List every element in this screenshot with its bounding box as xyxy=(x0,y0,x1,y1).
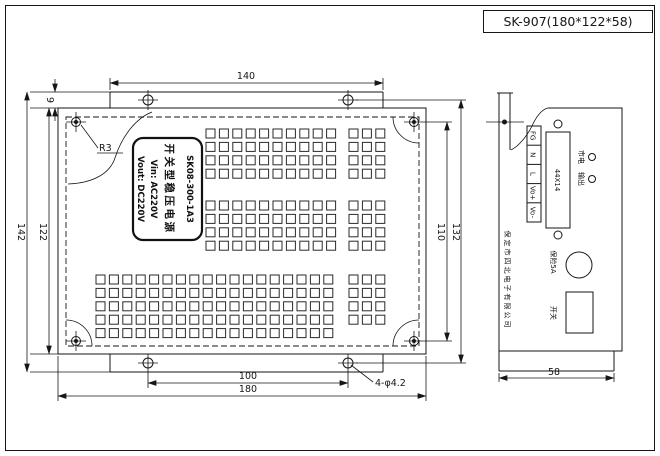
power-switch: 开关 xyxy=(549,292,593,333)
vent-hole xyxy=(230,329,239,338)
vent-hole xyxy=(300,214,309,223)
vent-hole xyxy=(376,156,385,165)
vent-hole xyxy=(96,329,105,338)
vent-hole xyxy=(300,156,309,165)
vent-hole xyxy=(313,129,322,138)
vent-hole xyxy=(246,228,255,237)
vent-hole xyxy=(230,315,239,324)
vent-hole xyxy=(206,241,215,250)
vent-hole xyxy=(243,288,252,297)
vent-hole xyxy=(376,228,385,237)
vent-hole xyxy=(286,156,295,165)
vent-hole xyxy=(163,275,172,284)
vent-hole xyxy=(233,241,242,250)
vent-hole xyxy=(233,214,242,223)
vent-hole xyxy=(362,275,371,284)
vent-hole xyxy=(257,302,266,311)
vent-hole xyxy=(349,214,358,223)
vent-hole xyxy=(246,169,255,178)
vent-hole xyxy=(327,129,336,138)
output-led xyxy=(589,176,596,183)
engineering-drawing: SK-907(180*122*58) xyxy=(0,0,660,456)
vent-hole xyxy=(300,241,309,250)
vent-hole xyxy=(376,169,385,178)
vent-hole xyxy=(376,201,385,210)
vent-hole xyxy=(136,302,145,311)
cutout-screw-top xyxy=(554,120,562,128)
vent-hole xyxy=(362,169,371,178)
company-name: 保定市四北电子有限公司 xyxy=(503,231,512,330)
vent-hole xyxy=(286,129,295,138)
vent-hole xyxy=(310,275,319,284)
callout-r3-label: R3 xyxy=(99,143,112,154)
vent-hole xyxy=(217,315,226,324)
vent-hole xyxy=(136,288,145,297)
vent-hole xyxy=(313,156,322,165)
dim-9-label: 9 xyxy=(44,97,55,103)
vent-hole xyxy=(362,228,371,237)
dim-58-label: 58 xyxy=(548,367,560,378)
vent-hole xyxy=(324,315,333,324)
vent-hole xyxy=(190,288,199,297)
vent-hole xyxy=(260,142,269,151)
vent-hole xyxy=(270,288,279,297)
vent-hole xyxy=(96,315,105,324)
vent-hole xyxy=(260,241,269,250)
dim-140: 140 xyxy=(110,71,383,83)
vent-hole xyxy=(349,201,358,210)
vent-hole xyxy=(206,129,215,138)
vent-hole xyxy=(286,228,295,237)
vent-hole xyxy=(233,169,242,178)
cutout-screw-bottom xyxy=(554,231,562,239)
vent-hole xyxy=(150,329,159,338)
vent-hole xyxy=(313,142,322,151)
vent-hole xyxy=(349,315,358,324)
vent-hole xyxy=(123,315,132,324)
vent-hole xyxy=(190,302,199,311)
title-block: SK-907(180*122*58) xyxy=(484,11,653,33)
dim-110-label: 110 xyxy=(435,223,446,241)
corner-screw-top-right xyxy=(404,112,424,132)
vent-hole xyxy=(96,288,105,297)
vent-hole xyxy=(233,228,242,237)
vent-hole xyxy=(109,329,118,338)
vent-hole xyxy=(349,129,358,138)
vent-hole xyxy=(243,315,252,324)
vent-hole xyxy=(300,169,309,178)
vent-hole xyxy=(284,288,293,297)
vent-hole xyxy=(376,214,385,223)
vent-hole xyxy=(163,329,172,338)
vent-hole xyxy=(273,201,282,210)
vent-hole xyxy=(376,275,385,284)
vent-hole xyxy=(203,315,212,324)
vent-hole xyxy=(150,315,159,324)
vent-hole xyxy=(286,169,295,178)
vent-hole xyxy=(376,288,385,297)
vent-hole xyxy=(217,275,226,284)
vent-hole xyxy=(219,142,228,151)
side-body-outline xyxy=(499,108,622,351)
vent-hole xyxy=(109,315,118,324)
vent-hole xyxy=(349,302,358,311)
vent-hole xyxy=(257,329,266,338)
vent-hole xyxy=(176,302,185,311)
callout-r3: R3 xyxy=(81,125,123,154)
vent-hole xyxy=(190,275,199,284)
label-output: Vout: DC220V xyxy=(135,156,145,222)
vent-hole xyxy=(206,169,215,178)
side-flange-lip xyxy=(486,93,524,150)
fuse: 保险5A xyxy=(549,250,592,278)
cutout-size-label: 44X14 xyxy=(553,169,561,192)
vent-hole xyxy=(123,288,132,297)
vent-hole xyxy=(230,288,239,297)
vent-hole xyxy=(109,288,118,297)
terminal-vo-minus: Vo- xyxy=(529,207,537,219)
vent-hole xyxy=(260,214,269,223)
vent-hole xyxy=(203,275,212,284)
vent-hole xyxy=(206,214,215,223)
vent-hole xyxy=(286,214,295,223)
vent-hole xyxy=(176,288,185,297)
vent-hole xyxy=(310,288,319,297)
dim-100-label: 100 xyxy=(239,371,257,382)
switch-label: 开关 xyxy=(549,306,558,320)
vent-hole xyxy=(123,302,132,311)
vent-hole xyxy=(96,302,105,311)
vent-hole xyxy=(324,329,333,338)
vent-hole xyxy=(190,315,199,324)
label-product-name: 开关型稳压电源 xyxy=(163,144,176,235)
vent-hole xyxy=(327,241,336,250)
vent-hole xyxy=(362,129,371,138)
vent-hole xyxy=(313,169,322,178)
vent-hole xyxy=(362,156,371,165)
vent-hole xyxy=(327,142,336,151)
vent-hole xyxy=(349,142,358,151)
vent-hole xyxy=(150,288,159,297)
vent-hole xyxy=(300,129,309,138)
vent-hole xyxy=(376,241,385,250)
flange-screw-dot xyxy=(502,120,507,125)
dim-132-label: 132 xyxy=(450,223,461,241)
vent-hole xyxy=(313,201,322,210)
dim-140-label: 140 xyxy=(237,71,255,82)
main-view: SK08-300-1A3 开关型稳压电源 Vin: AC220V Vout: D… xyxy=(15,71,466,401)
terminal-vo-plus: Vo+ xyxy=(529,186,537,201)
vent-hole xyxy=(260,156,269,165)
vent-hole xyxy=(273,129,282,138)
fuse-holder xyxy=(566,252,592,278)
vent-hole xyxy=(206,228,215,237)
vent-hole xyxy=(297,329,306,338)
dim-100: 100 xyxy=(148,371,348,383)
vent-hole xyxy=(233,129,242,138)
vent-hole xyxy=(297,275,306,284)
vent-hole xyxy=(286,241,295,250)
vent-hole xyxy=(270,302,279,311)
drawing-title: SK-907(180*122*58) xyxy=(503,14,632,29)
vent-hole xyxy=(219,129,228,138)
vent-hole xyxy=(163,302,172,311)
vent-hole xyxy=(327,201,336,210)
vent-hole xyxy=(376,315,385,324)
side-view: FG N L Vo+ Vo- 44X14 市电 输出 保险5A 开关 xyxy=(486,93,622,382)
vent-hole xyxy=(260,129,269,138)
mains-led xyxy=(589,154,596,161)
dim-122-label: 122 xyxy=(37,223,48,241)
indicator-mains-label: 市电 xyxy=(577,150,586,164)
vent-hole xyxy=(284,302,293,311)
vent-hole xyxy=(297,288,306,297)
corner-screw-bottom-left xyxy=(66,331,86,351)
vent-hole xyxy=(349,156,358,165)
vent-hole xyxy=(230,302,239,311)
label-input: Vin: AC220V xyxy=(148,160,158,219)
dim-180: 180 xyxy=(58,384,426,396)
vent-hole xyxy=(270,315,279,324)
vent-hole xyxy=(136,329,145,338)
indicator-leds: 市电 输出 xyxy=(577,150,596,186)
vent-hole xyxy=(233,156,242,165)
vent-hole xyxy=(273,169,282,178)
corner-screw-bottom-right xyxy=(404,331,424,351)
vent-hole xyxy=(257,275,266,284)
indicator-output-label: 输出 xyxy=(577,172,586,186)
dim-142: 142 xyxy=(15,92,27,372)
vent-hole xyxy=(219,156,228,165)
vent-hole xyxy=(96,275,105,284)
vent-hole xyxy=(284,315,293,324)
vent-hole xyxy=(203,302,212,311)
vent-hole xyxy=(246,129,255,138)
vent-hole xyxy=(310,315,319,324)
vent-hole xyxy=(313,241,322,250)
vent-hole xyxy=(176,315,185,324)
vent-hole xyxy=(136,315,145,324)
vent-hole xyxy=(206,142,215,151)
vent-hole xyxy=(260,228,269,237)
vent-hole xyxy=(260,201,269,210)
vent-hole xyxy=(297,315,306,324)
vent-hole xyxy=(246,142,255,151)
vent-hole xyxy=(362,241,371,250)
vent-hole xyxy=(246,241,255,250)
vent-hole xyxy=(270,329,279,338)
vent-hole xyxy=(362,302,371,311)
vent-hole xyxy=(362,315,371,324)
vent-hole xyxy=(163,288,172,297)
vent-hole xyxy=(327,169,336,178)
vent-hole xyxy=(233,142,242,151)
vent-hole xyxy=(203,329,212,338)
vent-hole xyxy=(257,315,266,324)
dim-180-label: 180 xyxy=(239,384,257,395)
corner-screw-top-left xyxy=(66,112,86,132)
vent-hole xyxy=(362,214,371,223)
vent-hole xyxy=(246,201,255,210)
vent-hole xyxy=(376,302,385,311)
vent-hole xyxy=(123,329,132,338)
dim-9: 9 xyxy=(44,79,55,121)
dim-142-label: 142 xyxy=(15,223,26,241)
vent-hole xyxy=(362,288,371,297)
vent-hole xyxy=(310,329,319,338)
vent-hole xyxy=(176,275,185,284)
vent-hole xyxy=(376,129,385,138)
vent-hole xyxy=(246,214,255,223)
vent-hole xyxy=(270,275,279,284)
vent-hole xyxy=(176,329,185,338)
dim-58: 58 xyxy=(499,367,614,382)
label-model: SK08-300-1A3 xyxy=(184,155,194,223)
vent-hole xyxy=(310,302,319,311)
callout-mount-holes-label: 4-φ4.2 xyxy=(375,378,406,389)
vent-hole xyxy=(206,201,215,210)
vent-hole xyxy=(349,169,358,178)
vent-hole xyxy=(362,142,371,151)
vent-hole xyxy=(219,214,228,223)
vent-hole xyxy=(273,142,282,151)
connector-cutout: 44X14 xyxy=(546,120,570,239)
vent-hole xyxy=(109,275,118,284)
switch-body xyxy=(566,292,593,333)
terminal-n: N xyxy=(529,152,537,157)
dim-110: 110 xyxy=(435,122,447,341)
vent-hole xyxy=(349,275,358,284)
vent-hole xyxy=(217,302,226,311)
drawing-sheet: SK-907(180*122*58) xyxy=(0,0,660,456)
vent-hole xyxy=(327,228,336,237)
dim-132: 132 xyxy=(450,100,461,363)
vent-hole xyxy=(219,241,228,250)
vent-hole xyxy=(362,201,371,210)
vent-hole xyxy=(327,214,336,223)
vent-hole xyxy=(284,275,293,284)
vent-hole xyxy=(300,201,309,210)
vent-hole xyxy=(327,156,336,165)
vent-hole xyxy=(273,156,282,165)
vent-hole xyxy=(230,275,239,284)
vent-hole xyxy=(219,228,228,237)
vent-hole xyxy=(243,329,252,338)
fuse-label: 保险5A xyxy=(549,250,558,273)
vent-hole xyxy=(297,302,306,311)
terminal-l: L xyxy=(529,172,537,176)
vent-hole xyxy=(349,288,358,297)
vent-hole xyxy=(246,156,255,165)
vent-hole xyxy=(136,275,145,284)
vent-hole xyxy=(219,169,228,178)
rating-label-plate: SK08-300-1A3 开关型稳压电源 Vin: AC220V Vout: D… xyxy=(133,138,202,240)
vent-hole xyxy=(217,288,226,297)
vent-hole xyxy=(349,241,358,250)
vent-hole xyxy=(203,288,212,297)
vent-hole xyxy=(217,329,226,338)
vent-hole xyxy=(273,214,282,223)
vent-hole xyxy=(243,275,252,284)
vent-hole xyxy=(163,315,172,324)
vent-hole xyxy=(150,275,159,284)
vent-hole xyxy=(233,201,242,210)
vent-hole xyxy=(286,142,295,151)
terminal-block: FG N L Vo+ Vo- xyxy=(527,126,541,222)
vent-hole xyxy=(324,302,333,311)
vent-hole xyxy=(219,201,228,210)
side-breakout-curve xyxy=(511,108,548,150)
vent-hole xyxy=(349,228,358,237)
vent-hole xyxy=(260,169,269,178)
vent-hole xyxy=(313,228,322,237)
vent-hole xyxy=(190,329,199,338)
dim-122: 122 xyxy=(37,108,49,354)
terminal-fg: FG xyxy=(529,131,537,140)
extension-lines xyxy=(30,78,466,401)
vent-hole xyxy=(324,275,333,284)
vent-hole xyxy=(109,302,118,311)
vent-hole xyxy=(243,302,252,311)
vent-hole xyxy=(123,275,132,284)
vent-hole xyxy=(324,288,333,297)
vent-hole xyxy=(206,156,215,165)
callout-mount-holes: 4-φ4.2 xyxy=(351,365,406,389)
vent-hole xyxy=(273,241,282,250)
vent-hole xyxy=(300,142,309,151)
vent-hole xyxy=(300,228,309,237)
vent-hole xyxy=(286,201,295,210)
vent-hole xyxy=(273,228,282,237)
vent-hole xyxy=(284,329,293,338)
vent-hole xyxy=(313,214,322,223)
vent-hole xyxy=(257,288,266,297)
vent-hole xyxy=(376,142,385,151)
vent-hole xyxy=(150,302,159,311)
